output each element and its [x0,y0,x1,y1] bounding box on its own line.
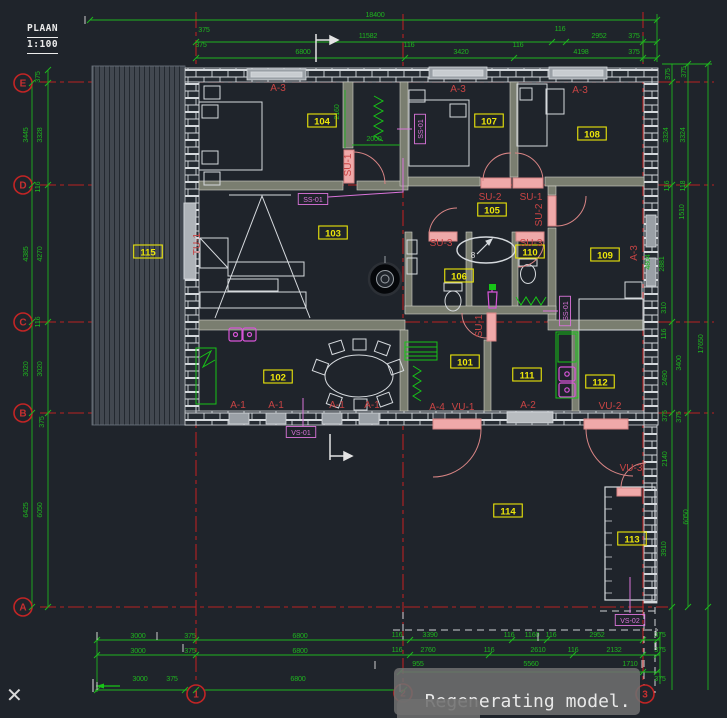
dimension-text: 6800 [290,674,305,683]
dimension-text: 118 [678,180,687,191]
dimension-text: 3420 [453,47,468,56]
detail-tag: A-4 [429,402,445,413]
dimension-text: 2760 [420,645,435,654]
room-number: 102 [270,373,286,384]
dimension-text: 3000 [130,646,145,655]
axis-bubble-label: A [19,603,26,614]
detail-tag: A-3 [572,85,588,96]
dimension-text: 17650 [696,334,705,353]
dimension-text: 116 [392,630,403,639]
dimension-text: 2952 [591,31,606,40]
detail-tag: A-3 [270,83,286,94]
dimension-text: 3400 [674,355,683,370]
dimension-text: 310 [659,302,668,314]
green-cabinets-vents [196,96,578,404]
dimension-text: 4270 [35,246,44,261]
axis-bubble-label: 3 [642,690,648,701]
axis-bubble-label: D [19,181,26,192]
dimension-text: 375 [663,68,672,80]
detail-tag: SU-1 [343,153,354,176]
detail-tag: SU-3 [520,238,543,249]
dimension-text: 3324 [678,127,687,142]
dimension-text: 3910 [659,541,668,556]
room-number: 106 [451,272,467,283]
dimension-text: 6800 [292,646,307,655]
plant-symbol [489,284,496,290]
room-number: 103 [325,229,341,240]
dimension-text: 375 [654,674,666,683]
room-number: 111 [520,371,536,382]
spec-tag: SS-01 [303,197,323,204]
dimension-text: 4804 [643,254,652,269]
dimension-text: 3390 [422,630,437,639]
detail-tag: A-1 [268,400,284,411]
floor-plan-drawing[interactable]: 1840037511582116295237537568001163420116… [0,0,727,718]
dimension-text: 3000 [130,631,145,640]
detail-tag: SU-1 [474,314,485,337]
drawing-title-scale: 1:100 [27,38,58,54]
dimension-text: 116 [504,630,515,639]
dimension-text: 116 [513,40,524,49]
dimension-text: 375 [198,25,210,34]
dimension-text: 3020 [35,361,44,376]
dimension-text: 375 [184,631,196,640]
spec-tag: SS-01 [563,301,570,321]
axis-bubble-label: E [20,79,27,90]
room-number: 105 [484,206,501,217]
dimension-text: 3324 [661,127,670,142]
command-echo-plot: plot [397,699,480,718]
dimension-text: 375 [37,416,46,428]
detail-tag: VU-3 [620,463,643,474]
dimension-text: 375 [628,47,640,56]
detail-tag: SU-2 [534,203,545,226]
detail-tag: SU-3 [430,238,453,249]
detail-tag: TU-1 [192,232,203,255]
dimension-text: 2140 [660,451,669,466]
detail-tag: A-3 [629,245,640,261]
room-number: 113 [624,535,639,546]
dimension-text: 5560 [523,659,538,668]
dimension-text: 375 [166,674,178,683]
spec-tag: SS-01 [418,119,425,139]
drawing-title-name: PLAAN [27,22,58,38]
axis-bubble-label: C [19,318,26,329]
dimension-text: 3020 [21,361,30,376]
room-number: 108 [584,130,600,141]
axis-bubble-label: B [19,409,26,420]
dimension-text: 116 [404,40,415,49]
drawing-title: PLAAN 1:100 [27,22,58,54]
room-number: 101 [457,358,474,369]
dimension-text: 18400 [366,10,385,19]
detail-tag: A-1 [329,400,345,411]
dimension-text: 116 [555,24,566,33]
dimension-text: 4385 [21,246,30,261]
dimension-text: 375 [184,646,196,655]
note-text: 8 [471,251,476,260]
detail-tag: VU-2 [599,401,622,412]
dimension-text: 1160 [525,630,540,639]
dimension-text: 116 [392,645,403,654]
dimension-text: 6425 [21,502,30,517]
detail-tag: A-1 [230,400,246,411]
detail-tag: VU-1 [452,402,475,413]
room-number: 110 [522,248,537,259]
room-number: 114 [500,507,516,518]
axis-bubble-label: 1 [193,690,199,701]
dimension-text: 375 [660,410,669,422]
dimension-text: 116 [659,328,668,339]
dimension-text: 6050 [35,502,44,517]
cad-viewport[interactable]: 1840037511582116295237537568001163420116… [0,0,727,718]
dimension-text: 116 [568,645,579,654]
dimension-text: 4198 [573,47,588,56]
dimension-text: 2132 [606,645,621,654]
dimension-text: 116 [484,645,495,654]
spec-tag: VS-02 [620,618,640,625]
vent-symbol [516,297,546,305]
dimension-text: 6800 [292,631,307,640]
dimension-text: 2490 [660,370,669,385]
dimension-text: 1710 [622,659,637,668]
dimension-text: 116 [546,630,557,639]
room-number: 115 [140,248,156,259]
dimension-text: 375 [679,66,688,78]
dimension-text: 2000 [366,134,381,143]
room-number: 107 [481,117,497,128]
dimension-text: 2610 [530,645,545,654]
dimension-text: 1510 [677,204,686,219]
dimension-text: 375 [628,31,640,40]
dimension-text: 2952 [589,630,604,639]
dimension-text: 116 [662,180,671,191]
room-number: 112 [592,378,607,389]
dimension-text: 3328 [35,127,44,142]
detail-tag: SU-2 [479,192,502,203]
room-number: 109 [597,251,613,262]
detail-tag: A-1 [364,400,380,411]
dimension-text: 6800 [295,47,310,56]
detail-tag: A-2 [520,400,536,411]
tag-leader-line [328,158,403,197]
close-icon[interactable]: ✕ [6,683,23,707]
vent-symbol [413,366,421,401]
dimension-text: 11582 [359,31,378,40]
dimension-text: 375 [674,411,683,423]
dimension-text: 3445 [21,127,30,142]
dimension-text: 116 [33,316,42,327]
spec-tag: VS-01 [291,430,311,437]
room-number: 104 [314,117,331,128]
detail-tag: SU-1 [520,192,543,203]
dimension-text: 955 [412,659,424,668]
dimension-text: 6050 [681,509,690,524]
stove-symbol [369,256,401,295]
dimension-text: 3000 [132,674,147,683]
dimension-text: 2881 [657,256,666,271]
detail-tag: A-3 [450,84,466,95]
